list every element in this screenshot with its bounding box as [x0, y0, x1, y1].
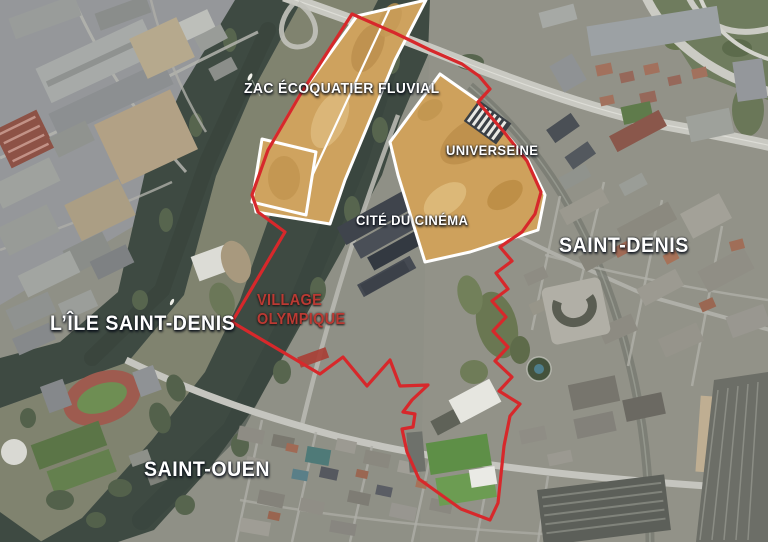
- dome-building: [1, 439, 27, 465]
- zone-zac-south-parcel: [252, 139, 316, 215]
- label-saint-denis: SAINT-DENIS: [559, 234, 689, 258]
- label-village-olympique-line2: OLYMPIQUE: [257, 310, 346, 329]
- label-cite-du-cinema: CITÉ DU CINÉMA: [356, 212, 468, 228]
- label-ile-saint-denis: L’ÎLE SAINT-DENIS: [50, 312, 235, 336]
- label-saint-ouen: SAINT-OUEN: [144, 458, 270, 482]
- label-universeine: UNIVERSEINE: [446, 142, 538, 158]
- label-zac-ecoquartier: ZAC ÉCOQUATIER FLUVIAL: [244, 80, 439, 97]
- park-pond: [534, 364, 544, 374]
- satellite-map: ZAC ÉCOQUATIER FLUVIAL UNIVERSEINE CITÉ …: [0, 0, 768, 542]
- label-village-olympique: VILLAGE OLYMPIQUE: [257, 291, 346, 329]
- label-village-olympique-line1: VILLAGE: [257, 291, 346, 310]
